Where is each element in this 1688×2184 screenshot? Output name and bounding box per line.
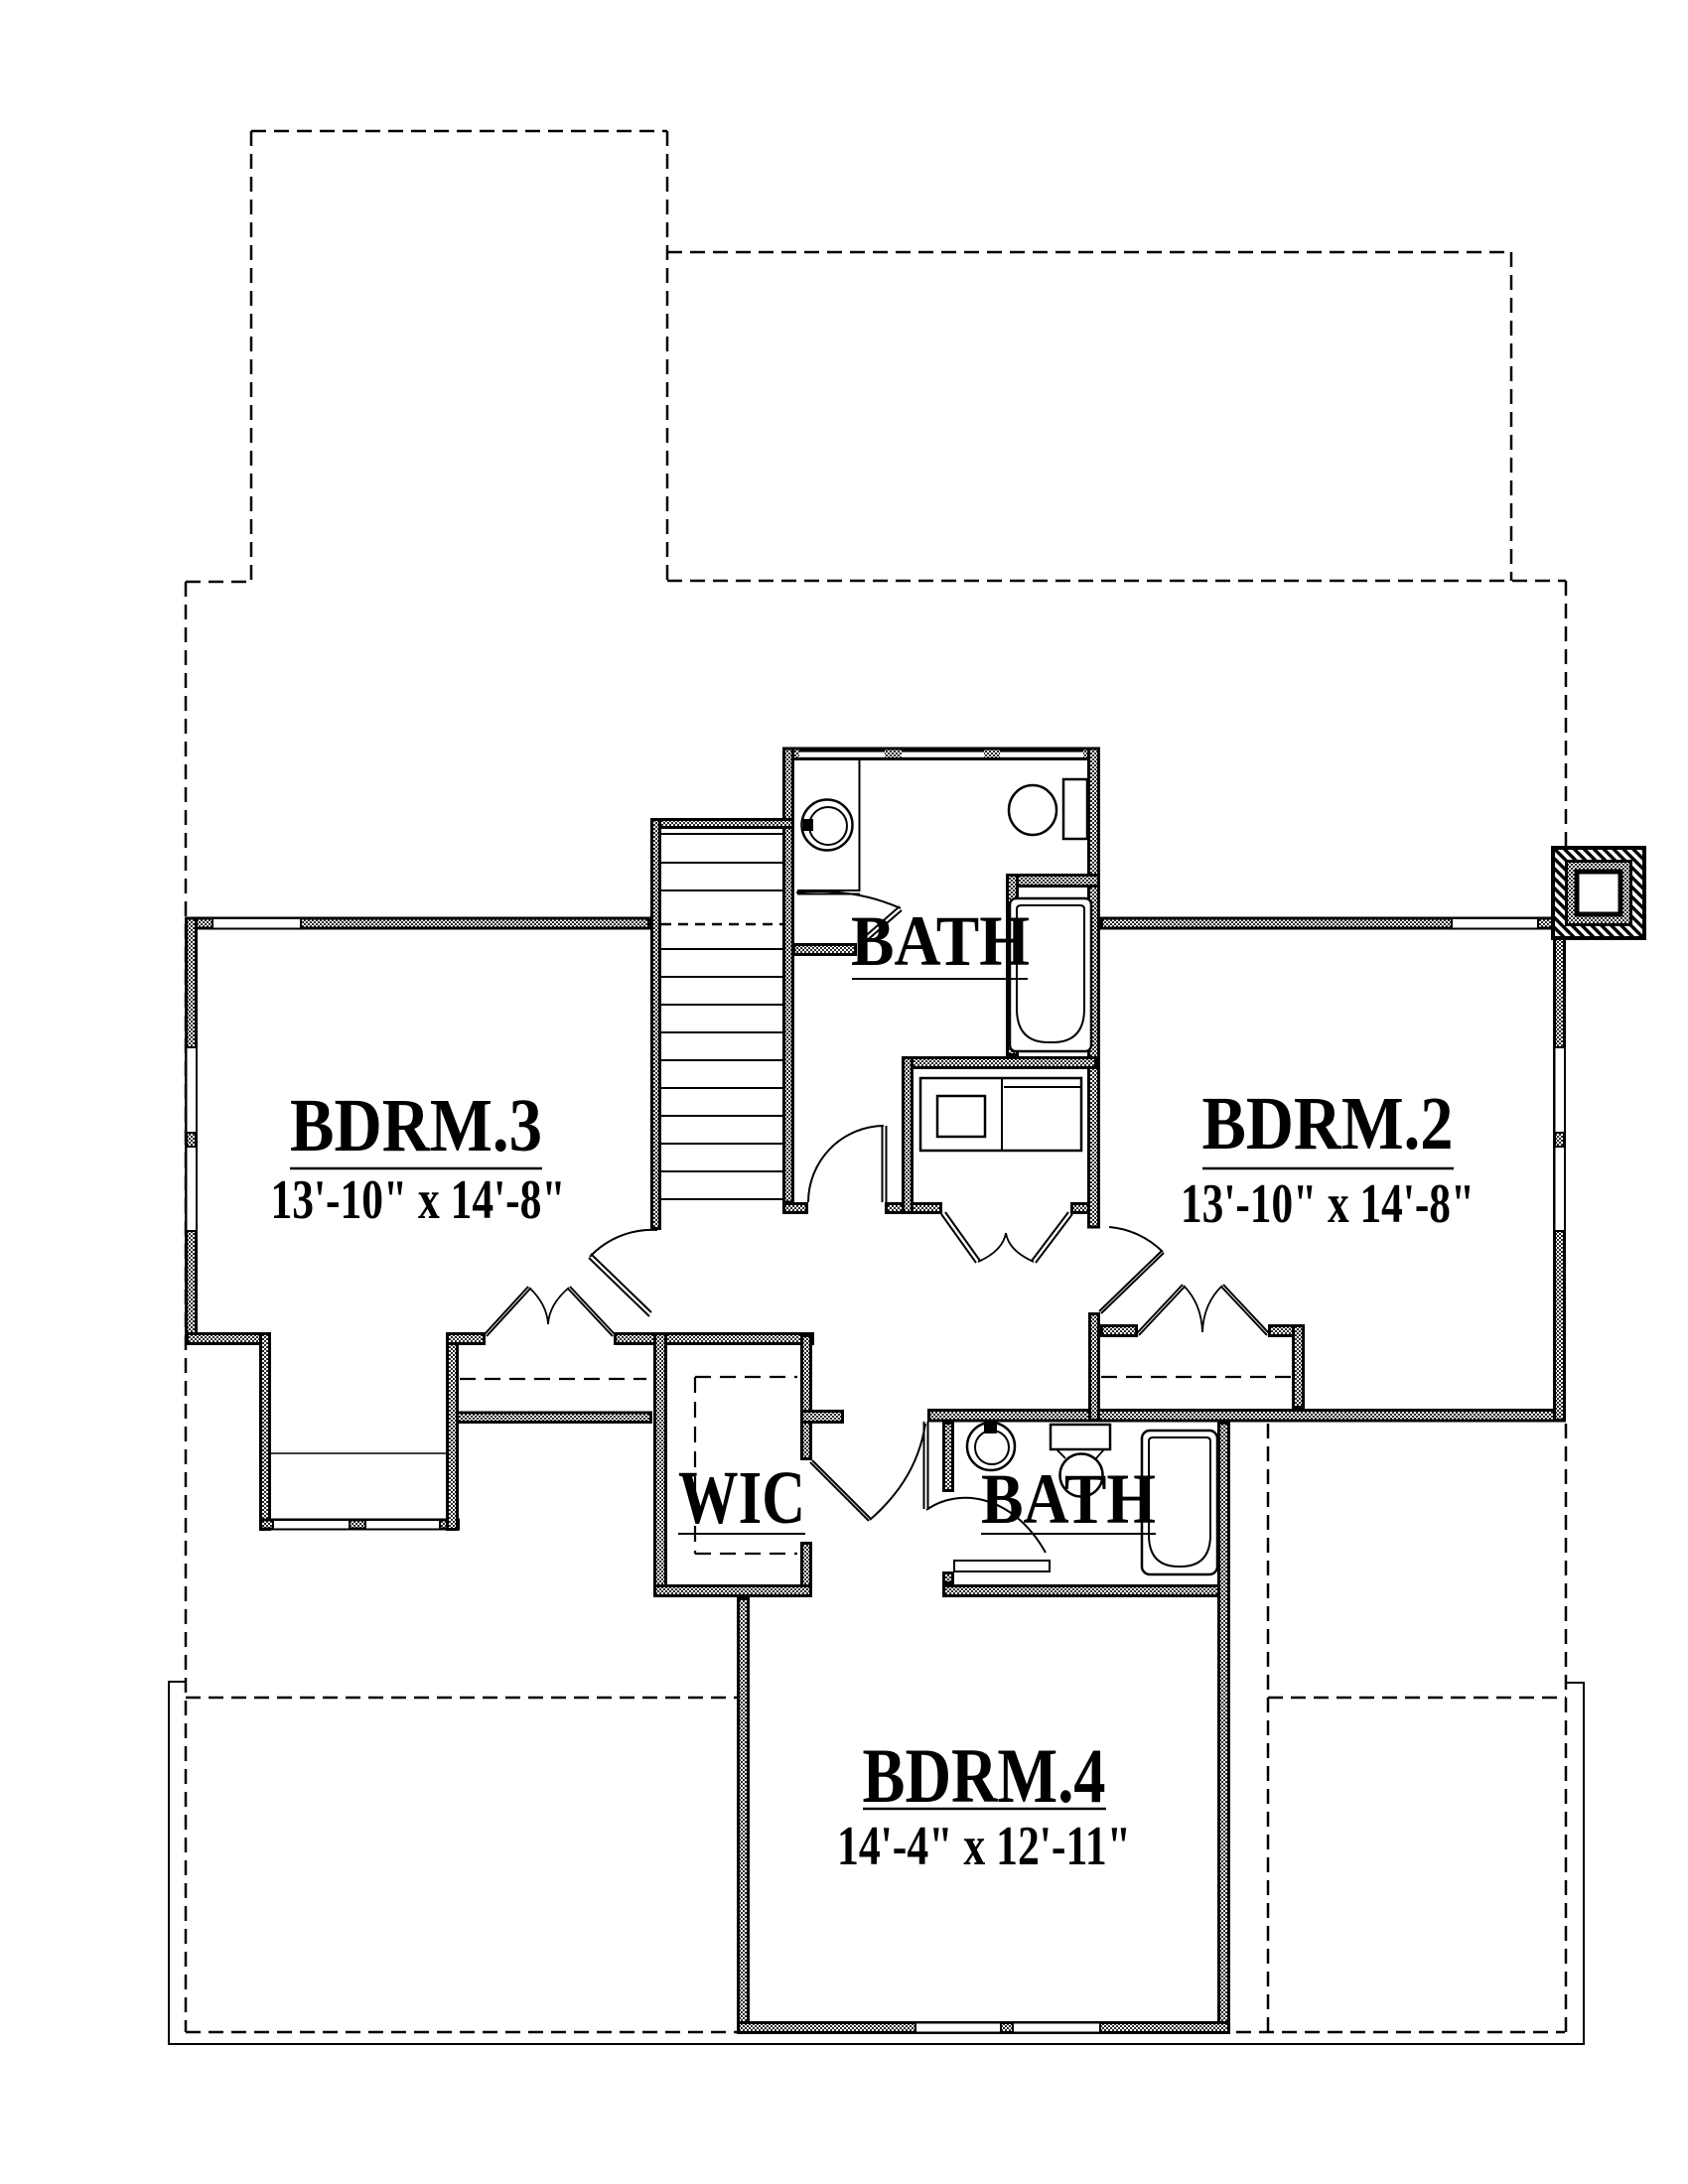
svg-text:BATH: BATH bbox=[981, 1459, 1156, 1539]
svg-text:13'-10" x 14'-8": 13'-10" x 14'-8" bbox=[271, 1169, 566, 1231]
svg-text:BDRM.2: BDRM.2 bbox=[1202, 1082, 1454, 1165]
svg-text:14'-4" x 12'-11": 14'-4" x 12'-11" bbox=[837, 1816, 1131, 1877]
svg-text:13'-10" x 14'-8": 13'-10" x 14'-8" bbox=[1181, 1173, 1475, 1235]
svg-text:BDRM.3: BDRM.3 bbox=[290, 1084, 542, 1167]
svg-text:WIC: WIC bbox=[678, 1456, 805, 1540]
svg-text:BDRM.4: BDRM.4 bbox=[863, 1732, 1106, 1819]
svg-text:BATH: BATH bbox=[851, 901, 1030, 981]
